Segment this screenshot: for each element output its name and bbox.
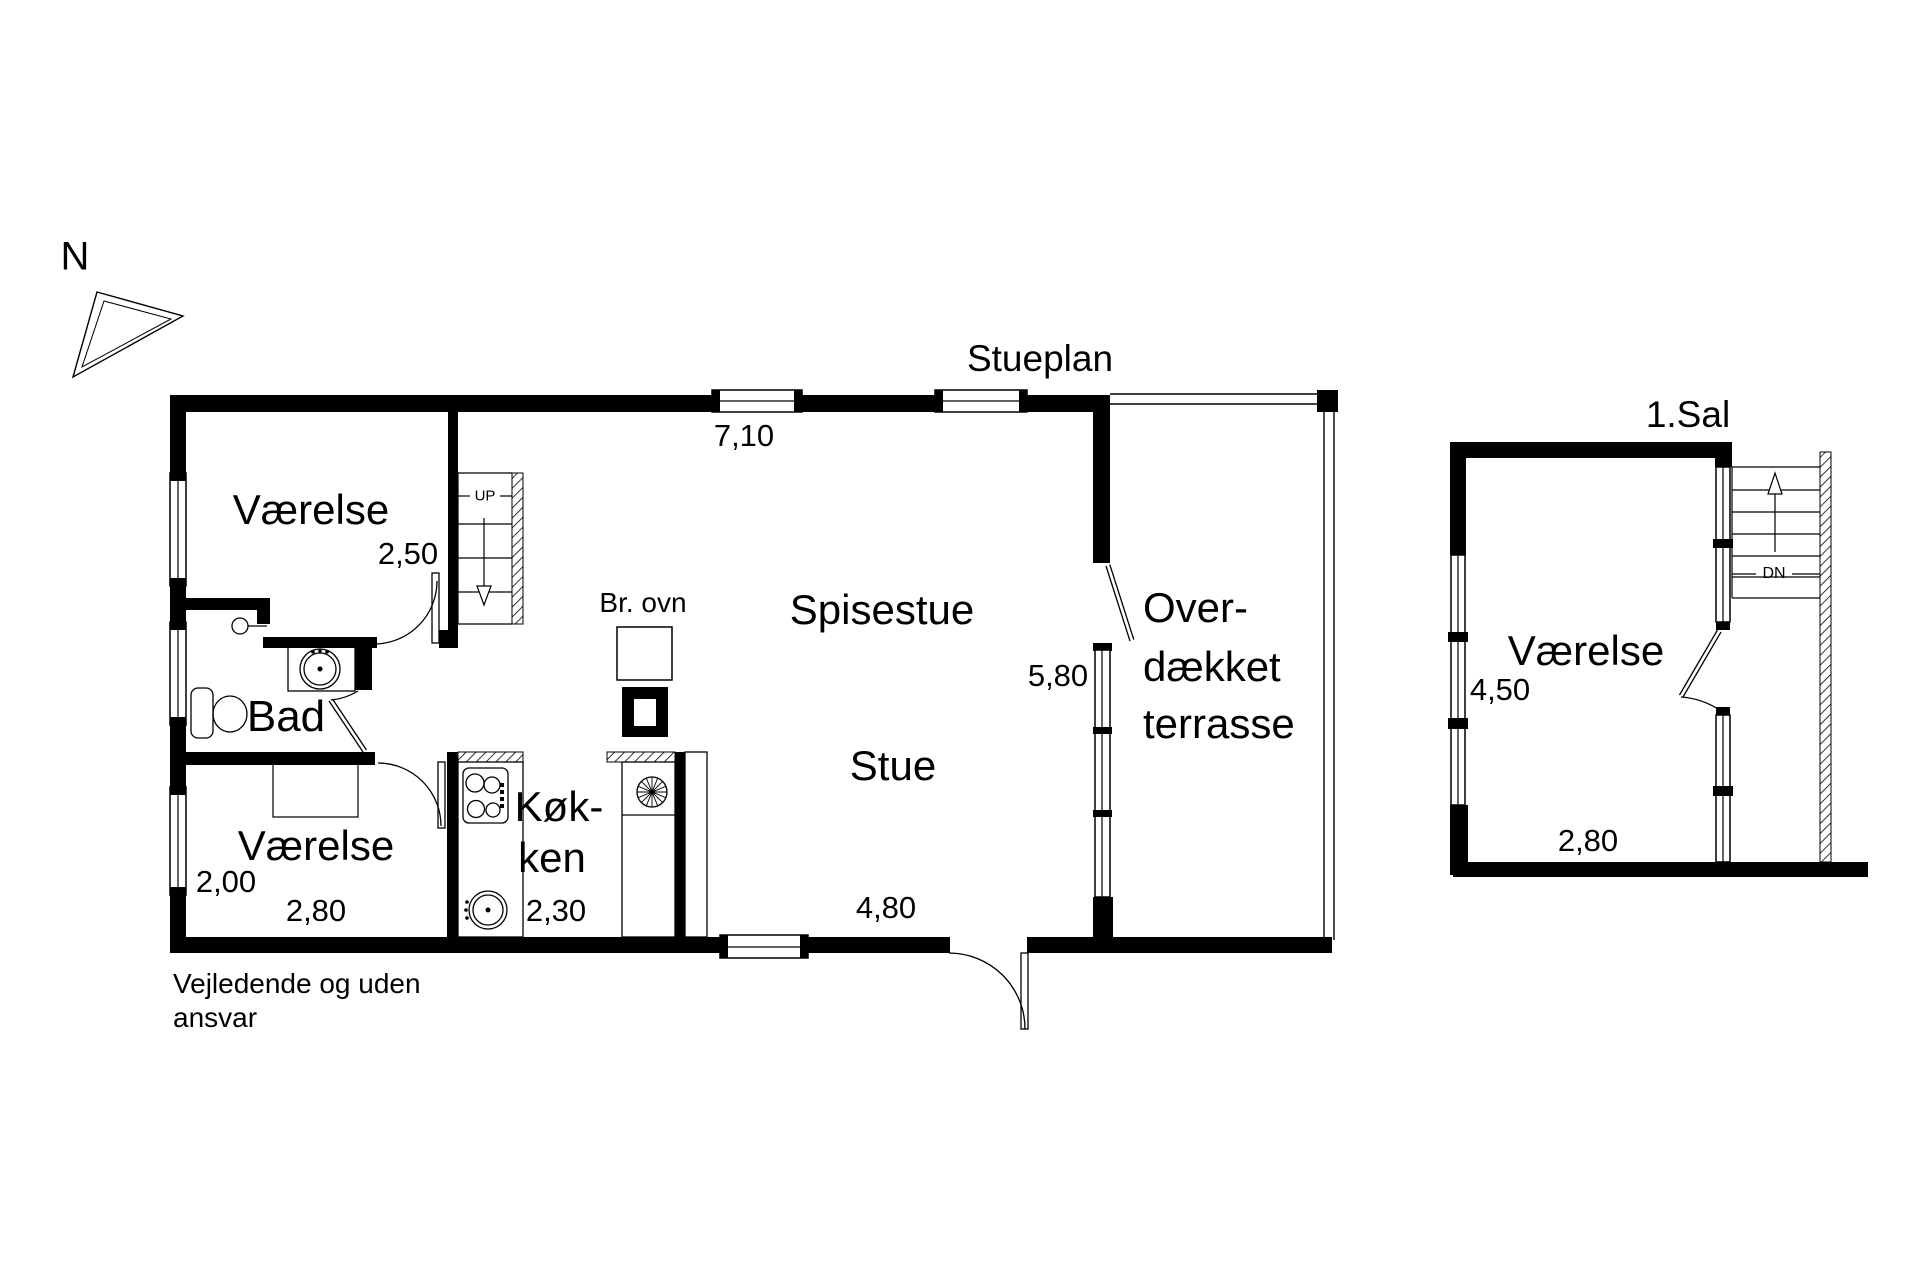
first-floor-door <box>1680 630 1722 711</box>
wood-stove-label: Br. ovn <box>599 587 686 619</box>
room-label-kitchen-line2: ken <box>518 834 586 882</box>
dim-dining-depth: 5,80 <box>1028 658 1088 694</box>
wood-stove <box>617 627 672 737</box>
north-arrow-icon <box>73 292 183 377</box>
room-label-bathroom: Bad <box>247 692 325 742</box>
room-label-bedroom-top: Værelse <box>233 486 389 534</box>
dim-bedroom-bottom-width: 2,80 <box>286 893 346 929</box>
dim-first-bedroom-depth: 4,50 <box>1470 672 1530 708</box>
dim-kitchen-width: 2,30 <box>526 893 586 929</box>
disclaimer-line2: ansvar <box>173 1001 257 1035</box>
compass-north-label: N <box>61 235 90 280</box>
terrace-label-line3: terrasse <box>1143 700 1295 748</box>
dim-living-width: 4,80 <box>856 890 916 926</box>
disclaimer-line1: Vejledende og uden <box>173 967 421 1001</box>
first-floor-stairs <box>1732 452 1831 862</box>
room-label-bedroom-bottom: Værelse <box>238 822 394 870</box>
room-label-dining: Spisestue <box>790 586 974 634</box>
dim-top-width: 7,10 <box>714 418 774 454</box>
terrace-label-line1: Over- <box>1143 584 1248 632</box>
room-label-kitchen-line1: Køk- <box>515 783 604 831</box>
first-floor-title: 1.Sal <box>1646 394 1730 436</box>
floor-plan-page: N Stueplan 1.Sal 7,10 Værelse 2,50 UP Br… <box>0 0 1920 1280</box>
dim-first-bedroom-width: 2,80 <box>1558 823 1618 859</box>
room-label-living: Stue <box>850 742 936 790</box>
bedroom-furniture <box>273 762 358 817</box>
terrace-label-line2: dækket <box>1143 643 1281 691</box>
dim-bedroom-bottom-depth: 2,00 <box>196 864 256 900</box>
stairs-up-label: UP <box>475 488 496 505</box>
stairs-down-label: DN <box>1762 565 1785 583</box>
ground-floor-title: Stueplan <box>967 338 1113 380</box>
room-label-first-bedroom: Værelse <box>1508 627 1664 675</box>
dim-bedroom-top: 2,50 <box>378 536 438 572</box>
ground-floor-windows <box>170 390 1112 958</box>
